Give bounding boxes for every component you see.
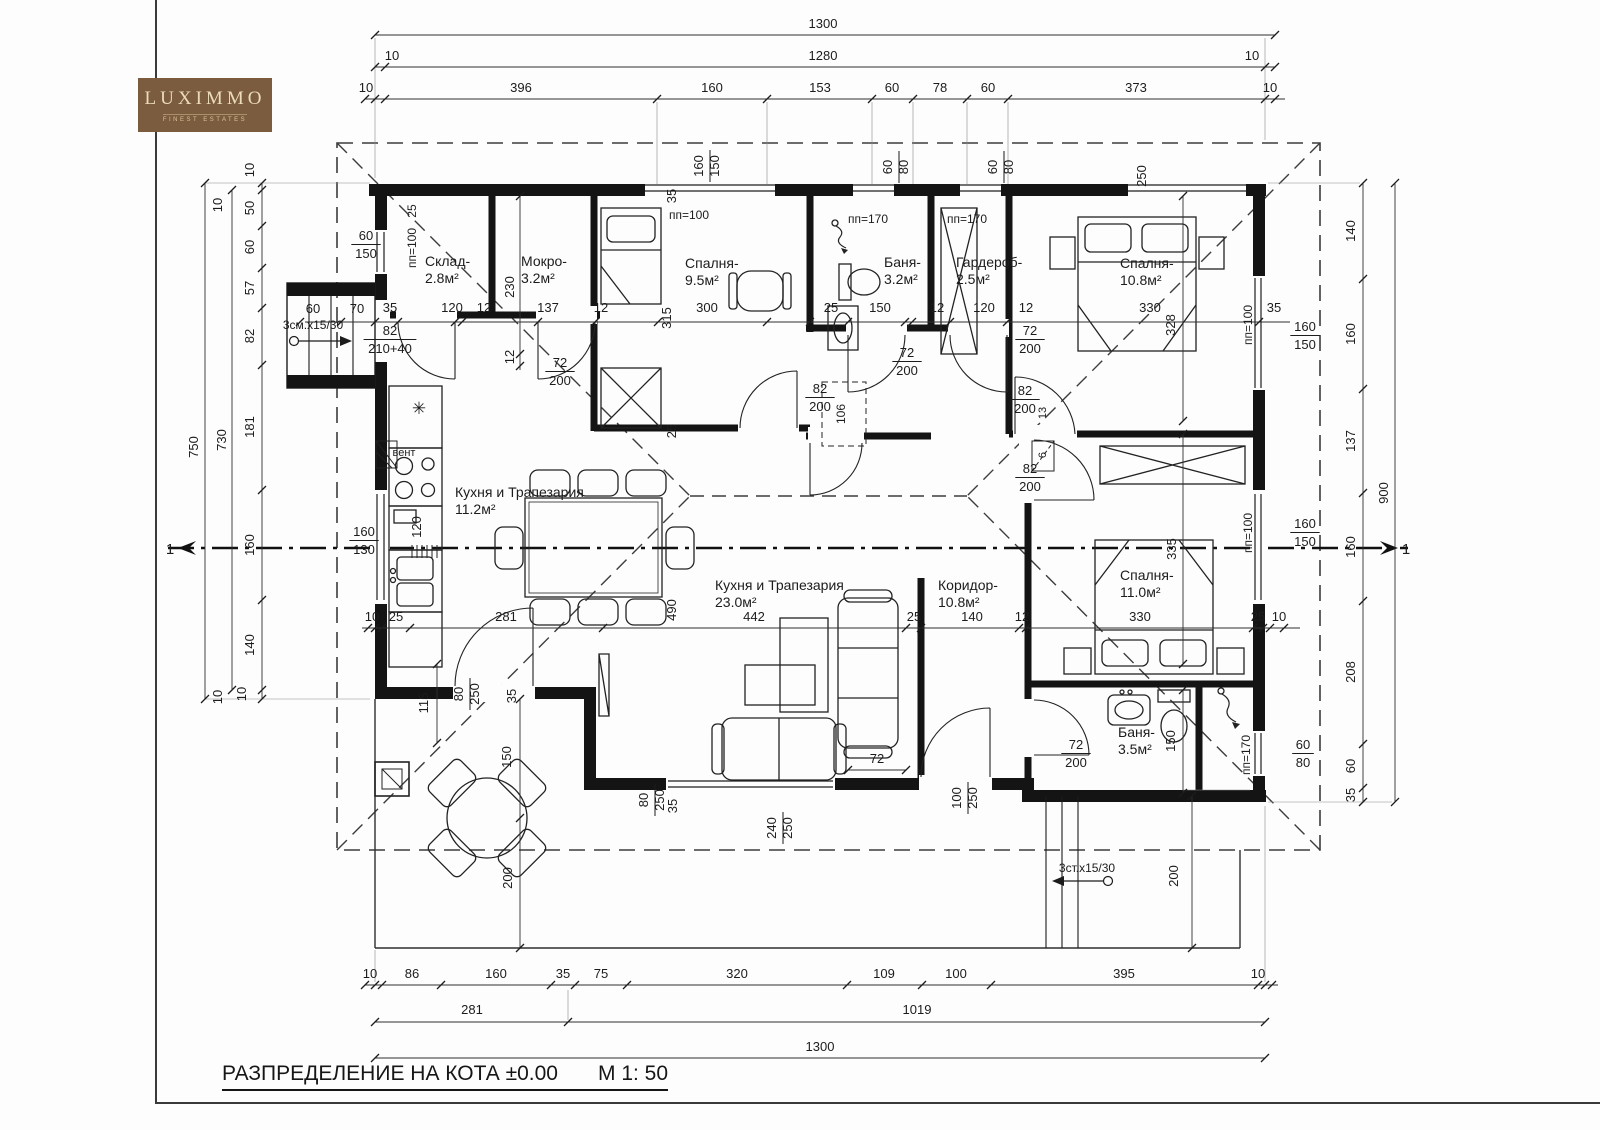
room-name: Баня-: [884, 254, 921, 270]
fraction-numerator: 80: [636, 793, 651, 807]
dining-chair: [578, 470, 618, 496]
stairs-start-marker: [290, 337, 299, 346]
faucet: [391, 569, 396, 574]
dim-label: 335: [1164, 538, 1179, 560]
fraction-numerator: 82: [1018, 383, 1032, 398]
dim-label: 300: [696, 300, 718, 315]
nightstand: [1050, 237, 1075, 269]
dim-label: 490: [664, 599, 679, 621]
fraction-numerator: 160: [691, 155, 706, 177]
pillow: [607, 216, 655, 242]
toilet-tank: [839, 264, 851, 300]
dim-label: 60: [242, 240, 257, 254]
room-name: Баня-: [1118, 724, 1155, 740]
dim-label: 115: [416, 693, 431, 714]
fraction-numerator: 60: [985, 160, 1000, 174]
room-name: Мокро-: [521, 253, 567, 269]
dim-label: 60: [1343, 759, 1358, 773]
room-area: 3.2м²: [884, 271, 918, 287]
annotation-label: пп=100: [1241, 513, 1255, 553]
shower-symbol: [836, 226, 846, 248]
fraction-numerator: 80: [451, 687, 466, 701]
annotation-label: пп=170: [947, 212, 987, 226]
dining-chair: [578, 599, 618, 625]
tv-unit: [599, 654, 609, 716]
annotation-label: пп=100: [669, 208, 709, 222]
sofa-pillow: [844, 590, 892, 602]
dim-label: 12: [477, 300, 491, 315]
dim-label: 328: [1163, 314, 1178, 336]
dim-label: 160: [1343, 536, 1358, 558]
fraction-denominator: 250: [780, 817, 795, 839]
dim-label: 35: [665, 799, 680, 813]
room-name: Кухня и Трапезария: [715, 577, 844, 593]
burner: [396, 482, 413, 499]
fraction-denominator: 210+40: [368, 341, 412, 356]
room-area: 23.0м²: [715, 594, 757, 610]
dim-label: 10: [210, 198, 225, 212]
bed-fold: [601, 250, 661, 304]
dim-label: 12: [594, 300, 608, 315]
sofa-cushion-lines: [838, 648, 898, 698]
fraction-numerator: 72: [1069, 737, 1083, 752]
dim-label: 25: [1251, 609, 1265, 624]
faucet: [1120, 690, 1124, 694]
chair-arm-right: [783, 273, 791, 309]
pillow: [1085, 224, 1131, 252]
fraction-denominator: 200: [549, 373, 571, 388]
bath-sink: [1108, 695, 1150, 725]
dim-label: 200: [1166, 865, 1181, 887]
dim-label: 70: [350, 301, 364, 316]
dim-label: 181: [242, 416, 257, 438]
fraction-numerator: 60: [880, 160, 895, 174]
dim-label: 60: [306, 301, 320, 316]
dim-label: 315: [659, 307, 674, 329]
annotation-label: пп=170: [848, 212, 888, 226]
fraction-denominator: 250: [467, 683, 482, 705]
dim-label: 330: [1129, 609, 1151, 624]
burner: [396, 458, 413, 475]
dim-label: 396: [510, 80, 532, 95]
dim-label: 373: [1125, 80, 1147, 95]
dim-label: 1019: [903, 1002, 932, 1017]
dim-label: 150: [499, 746, 514, 768]
pillow: [1102, 640, 1148, 666]
fraction-denominator: 200: [1019, 341, 1041, 356]
dim-label: 60: [885, 80, 899, 95]
dim-label: 160: [485, 966, 507, 981]
dim-label: 320: [726, 966, 748, 981]
room-name: Гардероб-: [956, 254, 1023, 270]
dim-label: 153: [809, 80, 831, 95]
dim-label: 120: [973, 300, 995, 315]
fraction-denominator: 200: [1014, 401, 1036, 416]
annotation-label: 3ст.x15/30: [1059, 861, 1116, 875]
porch-wall-bottom: [287, 375, 375, 388]
dim-label: 250: [1134, 165, 1149, 187]
shower-head: [1218, 688, 1224, 694]
dim-label: 12: [1019, 300, 1033, 315]
fraction-denominator: 80: [896, 160, 911, 174]
dining-chair: [530, 599, 570, 625]
annotation-label: ✳: [412, 399, 426, 418]
fraction-numerator: 60: [359, 228, 373, 243]
terrace-outline: [375, 699, 1240, 948]
dim-label: 395: [1113, 966, 1135, 981]
dim-label: 106: [834, 404, 848, 424]
room-name: Коридор-: [938, 577, 998, 593]
annotation-label: вент: [393, 447, 416, 459]
fraction-denominator: 200: [1065, 755, 1087, 770]
shower-arrow: [1232, 722, 1240, 729]
floor-plan-page: LUXIMMO FINEST ESTATES: [0, 0, 1600, 1130]
burner: [422, 484, 435, 497]
sink-basin: [397, 557, 433, 580]
dim-label: 57: [242, 281, 257, 295]
fraction-numerator: 82: [383, 323, 397, 338]
floor-plan-drawing: Склад-2.8м²Мокро-3.2м²Спалня-9.5м²Баня-3…: [0, 0, 1600, 1130]
dim-label: 25: [907, 609, 921, 624]
double-bed: [1095, 540, 1213, 674]
fraction-denominator: 200: [1019, 479, 1041, 494]
dim-label: 25: [664, 424, 679, 438]
dim-label: 25: [389, 609, 403, 624]
desk-chair: [737, 271, 783, 311]
fraction-denominator: 80: [1001, 160, 1016, 174]
dim-label: 1280: [809, 48, 838, 63]
shower-head: [832, 220, 838, 226]
room-area: 2.8м²: [425, 270, 459, 286]
dim-label: 35: [504, 689, 519, 703]
dim-label: 160: [1343, 323, 1358, 345]
dim-label: 10: [1272, 609, 1286, 624]
dim-label: 137: [537, 300, 559, 315]
dim-label: 10: [210, 690, 225, 704]
title-text: РАЗПРЕДЕЛЕНИЕ НА КОТА ±0.00: [222, 1062, 558, 1085]
dim-label: 10: [234, 687, 249, 701]
fraction-denominator: 150: [1294, 337, 1316, 352]
stairs-start-marker: [1104, 877, 1113, 886]
sofa-three-seat: [838, 598, 898, 748]
annotation-label: 3см.x15/30: [283, 318, 344, 332]
dim-label: 60: [981, 80, 995, 95]
dim-label: 25: [824, 300, 838, 315]
annotation-label: пп=170: [1239, 735, 1253, 775]
pillow: [1142, 224, 1188, 252]
dim-label: 137: [1343, 430, 1358, 452]
sink-bowl: [1115, 701, 1143, 719]
room-name: Склад-: [425, 253, 471, 269]
dim-label: 35: [1267, 300, 1281, 315]
dim-label: 120: [409, 516, 424, 538]
room-name: Спалня-: [1120, 567, 1174, 583]
room-area: 11.2м²: [455, 501, 496, 517]
dim-label: 281: [461, 1002, 483, 1017]
dim-label: 120: [441, 300, 463, 315]
dim-label: 10: [242, 163, 257, 177]
dim-label: 10: [1251, 966, 1265, 981]
annotation-label: 1: [1402, 541, 1410, 558]
dim-label: 100: [945, 966, 967, 981]
dim-label: 900: [1376, 482, 1391, 504]
dim-label: 78: [933, 80, 947, 95]
dim-label: 10: [359, 80, 373, 95]
nightstand: [1064, 648, 1091, 674]
column-diagonal: [382, 769, 402, 789]
dim-label: 50: [242, 201, 257, 215]
dining-chair: [626, 599, 666, 625]
room-area: 2.5м²: [956, 271, 990, 287]
dim-label: 75: [594, 966, 608, 981]
dim-label: 10: [365, 609, 379, 624]
room-name: Кухня и Трапезария: [455, 484, 584, 500]
dim-label: 330: [1139, 300, 1161, 315]
dim-label: 10: [1245, 48, 1259, 63]
terrace-chair: [426, 757, 478, 809]
room-area: 3.5м²: [1118, 741, 1152, 757]
dim-label: 13: [1037, 407, 1049, 419]
dim-label: 10: [363, 966, 377, 981]
fraction-denominator: 150: [1294, 534, 1316, 549]
burner: [422, 458, 434, 470]
annotation-label: пп=100: [405, 228, 419, 268]
dim-label: 10: [1263, 80, 1277, 95]
drawing-title: РАЗПРЕДЕЛЕНИЕ НА КОТА ±0.00М 1: 50: [222, 1062, 668, 1091]
fraction-denominator: 250: [652, 789, 667, 811]
dim-label: 200: [500, 867, 515, 889]
dining-chair: [626, 470, 666, 496]
fraction-denominator: 250: [965, 787, 980, 809]
porch-wall-top: [287, 283, 375, 296]
room-area: 10.8м²: [938, 594, 980, 610]
shower-arrow: [841, 248, 848, 254]
annotation-label: 25: [405, 204, 419, 218]
dim-label: 140: [242, 634, 257, 656]
annotation-label: 1: [166, 541, 174, 558]
fraction-denominator: 200: [896, 363, 918, 378]
fraction-numerator: 82: [813, 381, 827, 396]
fraction-numerator: 72: [1023, 323, 1037, 338]
fraction-denominator: 200: [809, 399, 831, 414]
dish-drainer: [412, 545, 442, 558]
dim-label: 1300: [806, 1039, 835, 1054]
dim-label: 442: [743, 609, 765, 624]
door-arcs: [398, 322, 1094, 777]
porch-stairs: [287, 283, 375, 388]
title-scale: М 1: 50: [598, 1062, 668, 1085]
annotation-label: пп=100: [1241, 305, 1255, 345]
dim-label: 35: [383, 300, 397, 315]
fraction-numerator: 160: [1294, 319, 1316, 334]
fraction-numerator: 72: [553, 355, 567, 370]
dim-label: 35: [1343, 788, 1358, 802]
terrace-chair: [426, 827, 478, 879]
fraction-denominator: 130: [353, 542, 375, 557]
fraction-numerator: 160: [1294, 516, 1316, 531]
fraction-numerator: 82: [1023, 461, 1037, 476]
dim-label: 140: [961, 609, 983, 624]
dim-label: 6: [1037, 452, 1049, 458]
room-area: 11.0м²: [1120, 584, 1161, 600]
fraction-denominator: 150: [355, 246, 377, 261]
fraction-denominator: 150: [707, 155, 722, 177]
dim-label: 208: [1343, 661, 1358, 683]
fraction-numerator: 60: [1296, 737, 1310, 752]
dim-label: 82: [242, 329, 257, 343]
room-area: 3.2м²: [521, 270, 555, 286]
toilet-bowl: [848, 269, 880, 295]
chair-arm-left: [729, 273, 737, 309]
sink-basin: [397, 583, 433, 606]
dim-label: 1300: [809, 16, 838, 31]
dim-label: 12: [1015, 609, 1029, 624]
dim-label: 160: [701, 80, 723, 95]
fraction-numerator: 160: [353, 524, 375, 539]
shower-symbol: [1222, 694, 1236, 722]
room-name: Спалня-: [685, 255, 739, 271]
wardrobe-x: [601, 368, 661, 428]
fraction-numerator: 72: [900, 345, 914, 360]
single-bed: [601, 208, 661, 304]
dim-label: 750: [186, 436, 201, 458]
fraction-denominator: 80: [1296, 755, 1310, 770]
stairs-arrowhead: [1052, 876, 1064, 886]
dim-label: 86: [405, 966, 419, 981]
dim-label: 281: [495, 609, 517, 624]
dim-label: 72: [870, 751, 884, 766]
dim-label: 140: [1343, 220, 1358, 242]
dim-label: 35: [664, 189, 679, 203]
room-area: 10.8м²: [1120, 272, 1162, 288]
dim-label: 160: [242, 534, 257, 556]
dim-label: 730: [214, 429, 229, 451]
wardrobe-x: [1100, 446, 1245, 484]
nightstand: [1217, 648, 1244, 674]
dim-label: 35: [556, 966, 570, 981]
faucet: [391, 578, 396, 583]
dim-label: 150: [869, 300, 891, 315]
dim-label: 12: [930, 300, 944, 315]
dim-label: 230: [502, 276, 517, 298]
fraction-numerator: 240: [764, 817, 779, 839]
faucet: [1128, 690, 1132, 694]
dim-label: 109: [873, 966, 895, 981]
terrace-table: [447, 778, 527, 858]
dim-label: 10: [385, 48, 399, 63]
room-area: 9.5м²: [685, 272, 719, 288]
dim-label: 150: [1163, 730, 1178, 752]
stairs-arrowhead: [340, 336, 352, 346]
fraction-numerator: 100: [949, 787, 964, 809]
dim-label: 12: [502, 350, 517, 364]
room-name: Спалня-: [1120, 255, 1174, 271]
